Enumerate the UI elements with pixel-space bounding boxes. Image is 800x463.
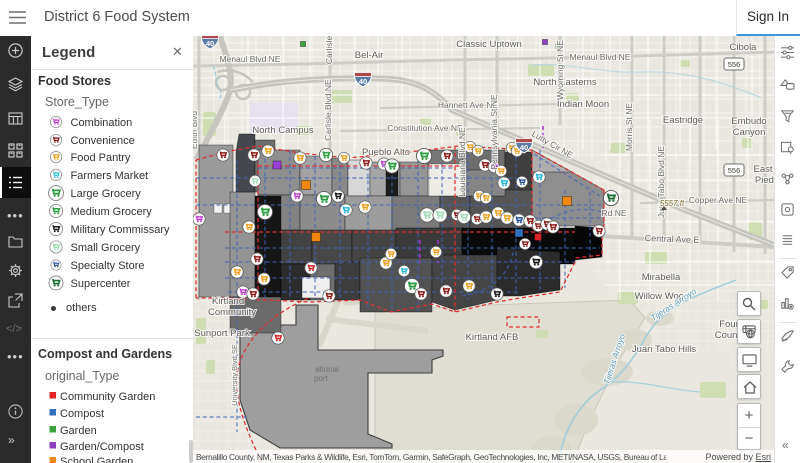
svg-text:Copper Ave NE: Copper Ave NE bbox=[689, 195, 748, 205]
svg-text:Menaul Blvd NE: Menaul Blvd NE bbox=[220, 54, 281, 64]
svg-text:40: 40 bbox=[206, 39, 214, 48]
svg-text:Mirabella: Mirabella bbox=[642, 272, 681, 283]
svg-text:Bel-Air: Bel-Air bbox=[355, 50, 384, 61]
svg-text:40: 40 bbox=[520, 143, 528, 152]
svg-text:Four: Four bbox=[719, 319, 739, 330]
svg-text:Sunport Park: Sunport Park bbox=[194, 328, 250, 339]
svg-text:Classic Uptown: Classic Uptown bbox=[456, 39, 521, 50]
svg-text:Central Ave E: Central Ave E bbox=[645, 233, 700, 245]
svg-text:Garden/Compost: Garden/Compost bbox=[60, 441, 144, 453]
svg-text:East: East bbox=[753, 164, 772, 175]
svg-text:North Campus: North Campus bbox=[252, 125, 313, 136]
svg-text:Kirtland: Kirtland bbox=[212, 296, 244, 307]
svg-text:Eastridge: Eastridge bbox=[663, 115, 703, 126]
svg-text:Constitution Ave NE: Constitution Ave NE bbox=[387, 123, 463, 133]
svg-text:Kirtland AFB: Kirtland AFB bbox=[466, 332, 519, 343]
svg-text:Carlisle: Carlisle bbox=[324, 36, 334, 64]
svg-text:40: 40 bbox=[359, 77, 367, 86]
svg-text:Morris St NE: Morris St NE bbox=[624, 103, 634, 152]
svg-text:Pennsylvania St NE: Pennsylvania St NE bbox=[489, 94, 499, 169]
svg-text:556: 556 bbox=[728, 166, 741, 175]
svg-text:Large Grocery: Large Grocery bbox=[70, 188, 141, 200]
svg-text:Food Pantry: Food Pantry bbox=[70, 152, 130, 164]
svg-text:Community: Community bbox=[208, 307, 256, 318]
svg-text:Wyoming St NE: Wyoming St NE bbox=[555, 40, 565, 100]
svg-text:Cibola: Cibola bbox=[730, 42, 758, 53]
svg-text:North Easterns: North Easterns bbox=[533, 77, 597, 88]
svg-text:Military Commissary: Military Commissary bbox=[70, 224, 170, 236]
svg-text:University Blvd SE: University Blvd SE bbox=[230, 344, 239, 406]
svg-text:Rd NE: Rd NE bbox=[601, 208, 626, 218]
svg-text:Garden: Garden bbox=[60, 425, 97, 437]
svg-text:Louisiana Blvd NE: Louisiana Blvd NE bbox=[457, 127, 467, 197]
svg-text:Specialty Store: Specialty Store bbox=[70, 260, 144, 272]
svg-text:Supercenter: Supercenter bbox=[70, 278, 130, 290]
svg-text:Embudo: Embudo bbox=[731, 116, 766, 127]
svg-text:port: port bbox=[314, 374, 329, 383]
svg-text:Community Garden: Community Garden bbox=[60, 391, 155, 403]
svg-text:Combination: Combination bbox=[70, 117, 132, 129]
svg-text:Juan Tabo Hills: Juan Tabo Hills bbox=[632, 344, 697, 355]
svg-text:Piedr: Piedr bbox=[755, 175, 774, 186]
svg-text:Canyon: Canyon bbox=[733, 127, 766, 138]
svg-text:Farmers Market: Farmers Market bbox=[70, 170, 148, 182]
svg-text:ational: ational bbox=[315, 365, 339, 374]
svg-text:Medium Grocery: Medium Grocery bbox=[70, 206, 152, 218]
svg-text:Convenience: Convenience bbox=[70, 135, 134, 147]
svg-text:School Garden: School Garden bbox=[60, 456, 133, 463]
svg-text:Menaul Blvd NE: Menaul Blvd NE bbox=[570, 52, 631, 62]
svg-text:Small Grocery: Small Grocery bbox=[70, 242, 140, 254]
svg-text:Edith Blvd: Edith Blvd bbox=[193, 111, 199, 150]
svg-text:Pueblo Alto: Pueblo Alto bbox=[362, 147, 410, 158]
svg-text:Compost: Compost bbox=[60, 408, 104, 420]
svg-text:Carlisle Blvd NE: Carlisle Blvd NE bbox=[323, 79, 333, 141]
svg-text:556: 556 bbox=[728, 60, 741, 69]
